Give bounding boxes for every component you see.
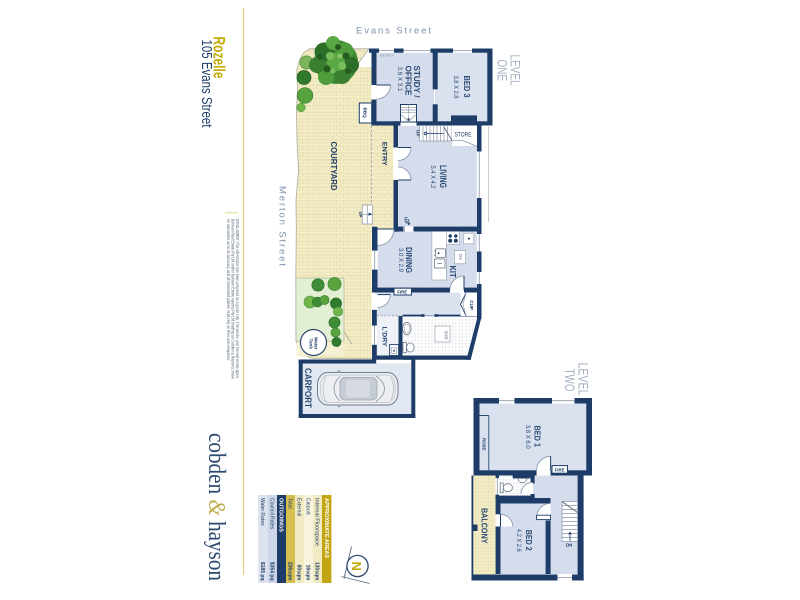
svg-text:OV: OV — [458, 254, 463, 260]
svg-text:FIRE: FIRE — [397, 290, 407, 295]
svg-text:STORE: STORE — [455, 133, 472, 139]
svg-text:Council Rates: Council Rates — [268, 498, 274, 530]
svg-text:UP: UP — [358, 212, 363, 218]
svg-text:cobden & hayson: cobden & hayson — [203, 433, 229, 581]
svg-text:105 Evans Street: 105 Evans Street — [198, 40, 215, 129]
svg-text:CARPORT: CARPORT — [302, 368, 313, 408]
svg-text:CUP: CUP — [469, 300, 474, 310]
svg-text:80sqm: 80sqm — [296, 565, 302, 581]
svg-text:BED 2: BED 2 — [524, 530, 534, 551]
svg-text:OFFICE: OFFICE — [404, 66, 413, 97]
svg-text:Internal Floorspace: Internal Floorspace — [314, 498, 320, 546]
svg-text:16sqm: 16sqm — [305, 565, 311, 581]
svg-text:OUTGOINGS: OUTGOINGS — [278, 498, 284, 533]
svg-text:3.8 X 2.8: 3.8 X 2.8 — [452, 76, 458, 100]
svg-text:Total: Total — [287, 498, 293, 509]
svg-text:5.4 X 4.2: 5.4 X 4.2 — [429, 166, 436, 189]
svg-text:External: External — [296, 498, 302, 516]
svg-text:ENTRY: ENTRY — [380, 142, 387, 167]
svg-text:Merton Street: Merton Street — [276, 186, 287, 266]
svg-text:ONE: ONE — [495, 60, 511, 82]
svg-text:BALCONY: BALCONY — [479, 508, 489, 544]
svg-text:Ex Door: Ex Door — [380, 54, 394, 58]
svg-text:$354 pq: $354 pq — [268, 562, 274, 581]
svg-text:COURTYARD: COURTYARD — [329, 142, 338, 191]
svg-text:BED 1: BED 1 — [533, 426, 543, 448]
svg-text:L'DRY: L'DRY — [381, 327, 388, 348]
svg-text:LIVING: LIVING — [438, 165, 448, 188]
svg-text:BED 3: BED 3 — [462, 76, 471, 99]
svg-text:APPROXIMATE AREAS: APPROXIMATE AREAS — [323, 498, 329, 559]
svg-text:SHR: SHR — [444, 331, 449, 340]
svg-text:FIRE: FIRE — [555, 467, 565, 472]
svg-text:DINING: DINING — [404, 247, 413, 273]
svg-text:3.8 X 6.0: 3.8 X 6.0 — [524, 425, 530, 450]
svg-text:TWO: TWO — [562, 369, 578, 392]
svg-text:UP: UP — [403, 217, 408, 223]
svg-text:130sqm: 130sqm — [314, 562, 320, 581]
svg-text:3.0 X 2.9: 3.0 X 2.9 — [397, 248, 403, 273]
svg-text:DN: DN — [566, 543, 572, 548]
svg-text:KIT: KIT — [448, 266, 457, 278]
svg-text:Tank: Tank — [309, 339, 314, 350]
svg-text:Carport: Carport — [305, 498, 311, 515]
svg-text:BBQ: BBQ — [362, 108, 367, 119]
svg-text:3.6 X 3.1: 3.6 X 3.1 — [396, 67, 402, 93]
svg-text:no warranties as to its accura: no warranties as to its accuracy and all… — [226, 219, 231, 361]
svg-text:4.2 X 2.6: 4.2 X 2.6 — [515, 529, 521, 553]
svg-text:UP: UP — [415, 130, 420, 136]
svg-text:$185 pq: $185 pq — [259, 562, 265, 581]
svg-text:Water Rates: Water Rates — [259, 498, 265, 526]
svg-text:226sqm: 226sqm — [287, 562, 293, 581]
svg-text:N: N — [349, 562, 364, 571]
svg-text:ROBE: ROBE — [482, 438, 487, 451]
